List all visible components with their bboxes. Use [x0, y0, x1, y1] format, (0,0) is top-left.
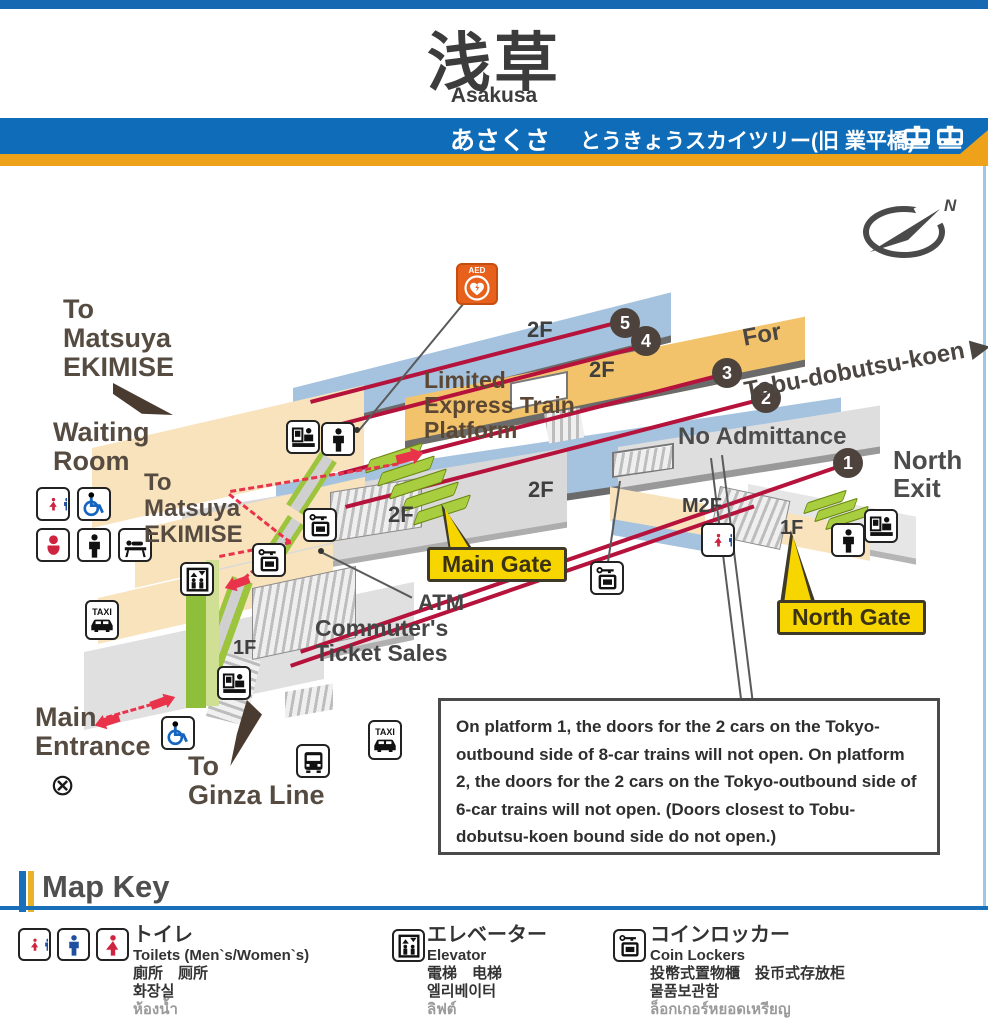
mapkey-title: Map Key: [42, 869, 169, 905]
legend-elevator-zh: 電梯 电梯: [427, 965, 502, 982]
legend-lockers-ja: コインロッカー: [650, 924, 790, 947]
legend-elevator-en: Elevator: [427, 947, 486, 964]
atm-location-dot: [318, 548, 324, 554]
f2-label: 2F: [528, 478, 554, 502]
to-ginza-label: To Ginza Line: [188, 752, 325, 810]
legend-lockers-th: ล็อกเกอร์หยอดเหรียญ: [650, 1001, 791, 1018]
legend-elevator-th: ลิฟต์: [427, 1001, 457, 1018]
legend-lockers-ko: 물품보관함: [650, 983, 719, 1000]
station-hiragana: あさくさ: [450, 121, 550, 157]
aed-label: AED: [469, 267, 486, 275]
to-matsuya-arrow: [113, 383, 173, 415]
legend-elevator-ko: 엘리베이터: [427, 983, 496, 1000]
legend-mens-toilet-icon: [57, 928, 90, 961]
elevator-icon: [180, 562, 214, 596]
map-right-border: [983, 166, 986, 906]
legend-lockers-en: Coin Lockers: [650, 947, 745, 964]
legend-lockers-zh: 投幣式置物櫃 投币式存放柜: [650, 965, 845, 982]
main-entrance-label: Main Entrance: [35, 703, 151, 761]
aed-icon: AED: [456, 263, 498, 305]
to-matsuya-2f-label: To Matsuya EKIMISE: [144, 470, 243, 548]
toilets-icon: [701, 523, 735, 557]
f2-label: 2F: [589, 358, 615, 382]
station-staff-icon: [77, 528, 111, 562]
station-map-page: 浅草 Asakusa あさくさ とうきょうスカイツリー(旧 業平橋): [0, 0, 988, 1024]
platform-number-3: 3: [712, 358, 742, 388]
legend-toilets-icon: [18, 928, 51, 961]
taxi-icon: TAXI: [368, 720, 402, 760]
to-matsuya-label: To Matsuya EKIMISE: [63, 295, 174, 382]
north-gate-callout: North Gate: [777, 600, 926, 635]
station-title-en: Asakusa: [0, 84, 988, 108]
legend-toilets-ja: トイレ: [133, 924, 193, 947]
legend-toilets-en: Toilets (Men`s/Women`s): [133, 947, 309, 964]
compass-north-label: N: [944, 196, 956, 216]
station-staff-icon: [321, 422, 355, 456]
legend-toilets-ko: 화장실: [133, 983, 174, 1000]
crossing-symbol: ⊗: [50, 770, 75, 802]
next-station-label: とうきょうスカイツリー(旧 業平橋): [580, 125, 915, 155]
legend-elevator-icon: [392, 929, 425, 962]
north-exit-label: North Exit: [893, 446, 962, 502]
platform-number-4: 4: [631, 326, 661, 356]
toilets-icon: [36, 487, 70, 521]
f2-label: 2F: [527, 318, 553, 342]
f2-label: 2F: [388, 503, 414, 527]
stairs-small: [285, 684, 333, 718]
f1-label: 1F: [233, 638, 256, 660]
wheelchair-icon: [161, 716, 195, 750]
legend-coin-locker-icon: [613, 929, 646, 962]
taxi-label: TAXI: [375, 728, 395, 737]
nursing-room-icon: [36, 528, 70, 562]
limited-express-label: Limited Express Train Platform: [424, 368, 575, 442]
coin-locker-icon: [303, 508, 337, 542]
commuters-label: Commuter's Ticket Sales: [315, 616, 448, 666]
f1-north-label: 1F: [780, 518, 803, 540]
train-icon: [935, 124, 965, 150]
train-icon: [902, 124, 932, 150]
coin-locker-icon: [252, 543, 286, 577]
amber-stripe: [0, 154, 988, 166]
taxi-icon: TAXI: [85, 600, 119, 640]
legend-elevator-ja: エレベーター: [427, 924, 547, 947]
taxi-label: TAXI: [92, 608, 112, 617]
atm-label: ATM: [418, 591, 464, 615]
legend-toilets-zh: 廁所 厕所: [133, 965, 208, 982]
legend-womens-toilet-icon: [96, 928, 129, 961]
platform-note-box: On platform 1, the doors for the 2 cars …: [438, 698, 940, 855]
legend-toilets-th: ห้องน้ำ: [133, 1001, 178, 1018]
platform-number-1: 1: [833, 448, 863, 478]
no-admittance-label: No Admittance: [678, 424, 846, 450]
wheelchair-icon: [77, 487, 111, 521]
coin-locker-icon: [590, 561, 624, 595]
m2f-label: M2F: [682, 496, 722, 518]
station-staff-icon: [831, 523, 865, 557]
ticket-office-icon: [217, 666, 251, 700]
main-gate-callout: Main Gate: [427, 547, 567, 582]
waiting-room-label: Waiting Room: [53, 418, 149, 476]
direction-label: For Tobu-dobutsu-koen ▶: [728, 257, 988, 430]
ticket-window-icon: [864, 509, 898, 543]
ticket-window-icon: [286, 420, 320, 454]
mapkey-rule: [0, 906, 988, 910]
top-blue-bar: [0, 0, 988, 9]
